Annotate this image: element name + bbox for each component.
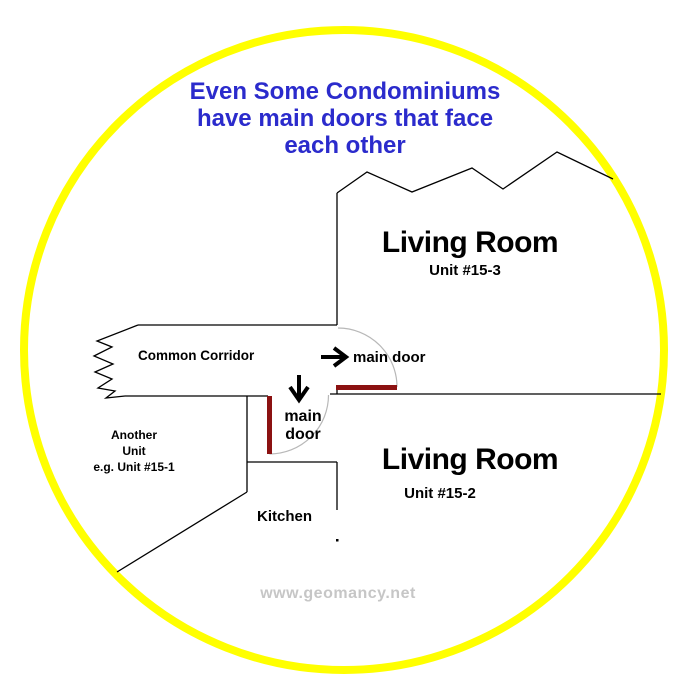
common-corridor-label: Common Corridor xyxy=(138,348,254,363)
main-door-label-line-1: main xyxy=(263,408,343,426)
arrow-down-icon xyxy=(290,375,308,400)
another-unit-line-1: Another xyxy=(69,427,199,443)
caption-line-1: Even Some Condominiums xyxy=(167,78,523,105)
unit-number-15-2: Unit #15-2 xyxy=(340,485,540,502)
another-unit-diagonal-wall xyxy=(117,492,247,572)
main-door-label-unit-15-2: main door xyxy=(263,408,343,444)
main-door-label-unit-15-3: main door xyxy=(353,349,426,366)
caption-line-3: each other xyxy=(167,132,523,159)
caption: Even Some Condominiums have main doors t… xyxy=(167,78,523,159)
living-room-label-unit-15-2: Living Room xyxy=(370,443,570,477)
caption-line-2: have main doors that face xyxy=(167,105,523,132)
another-unit-line-2: Unit xyxy=(69,443,199,459)
another-unit-line-3: e.g. Unit #15-1 xyxy=(69,459,199,475)
kitchen-label: Kitchen xyxy=(257,508,312,525)
main-door-label-line-2: door xyxy=(263,426,343,444)
arrow-right-icon xyxy=(321,348,346,366)
kitchen-wall-dot xyxy=(336,539,339,542)
living-room-label-unit-15-3: Living Room xyxy=(370,226,570,260)
feng-shui-diagram: Even Some Condominiums have main doors t… xyxy=(0,0,686,700)
another-unit-label: Another Unit e.g. Unit #15-1 xyxy=(69,427,199,475)
watermark: www.geomancy.net xyxy=(238,585,438,603)
corridor-torn-edge xyxy=(94,325,138,398)
unit-number-15-3: Unit #15-3 xyxy=(365,262,565,279)
